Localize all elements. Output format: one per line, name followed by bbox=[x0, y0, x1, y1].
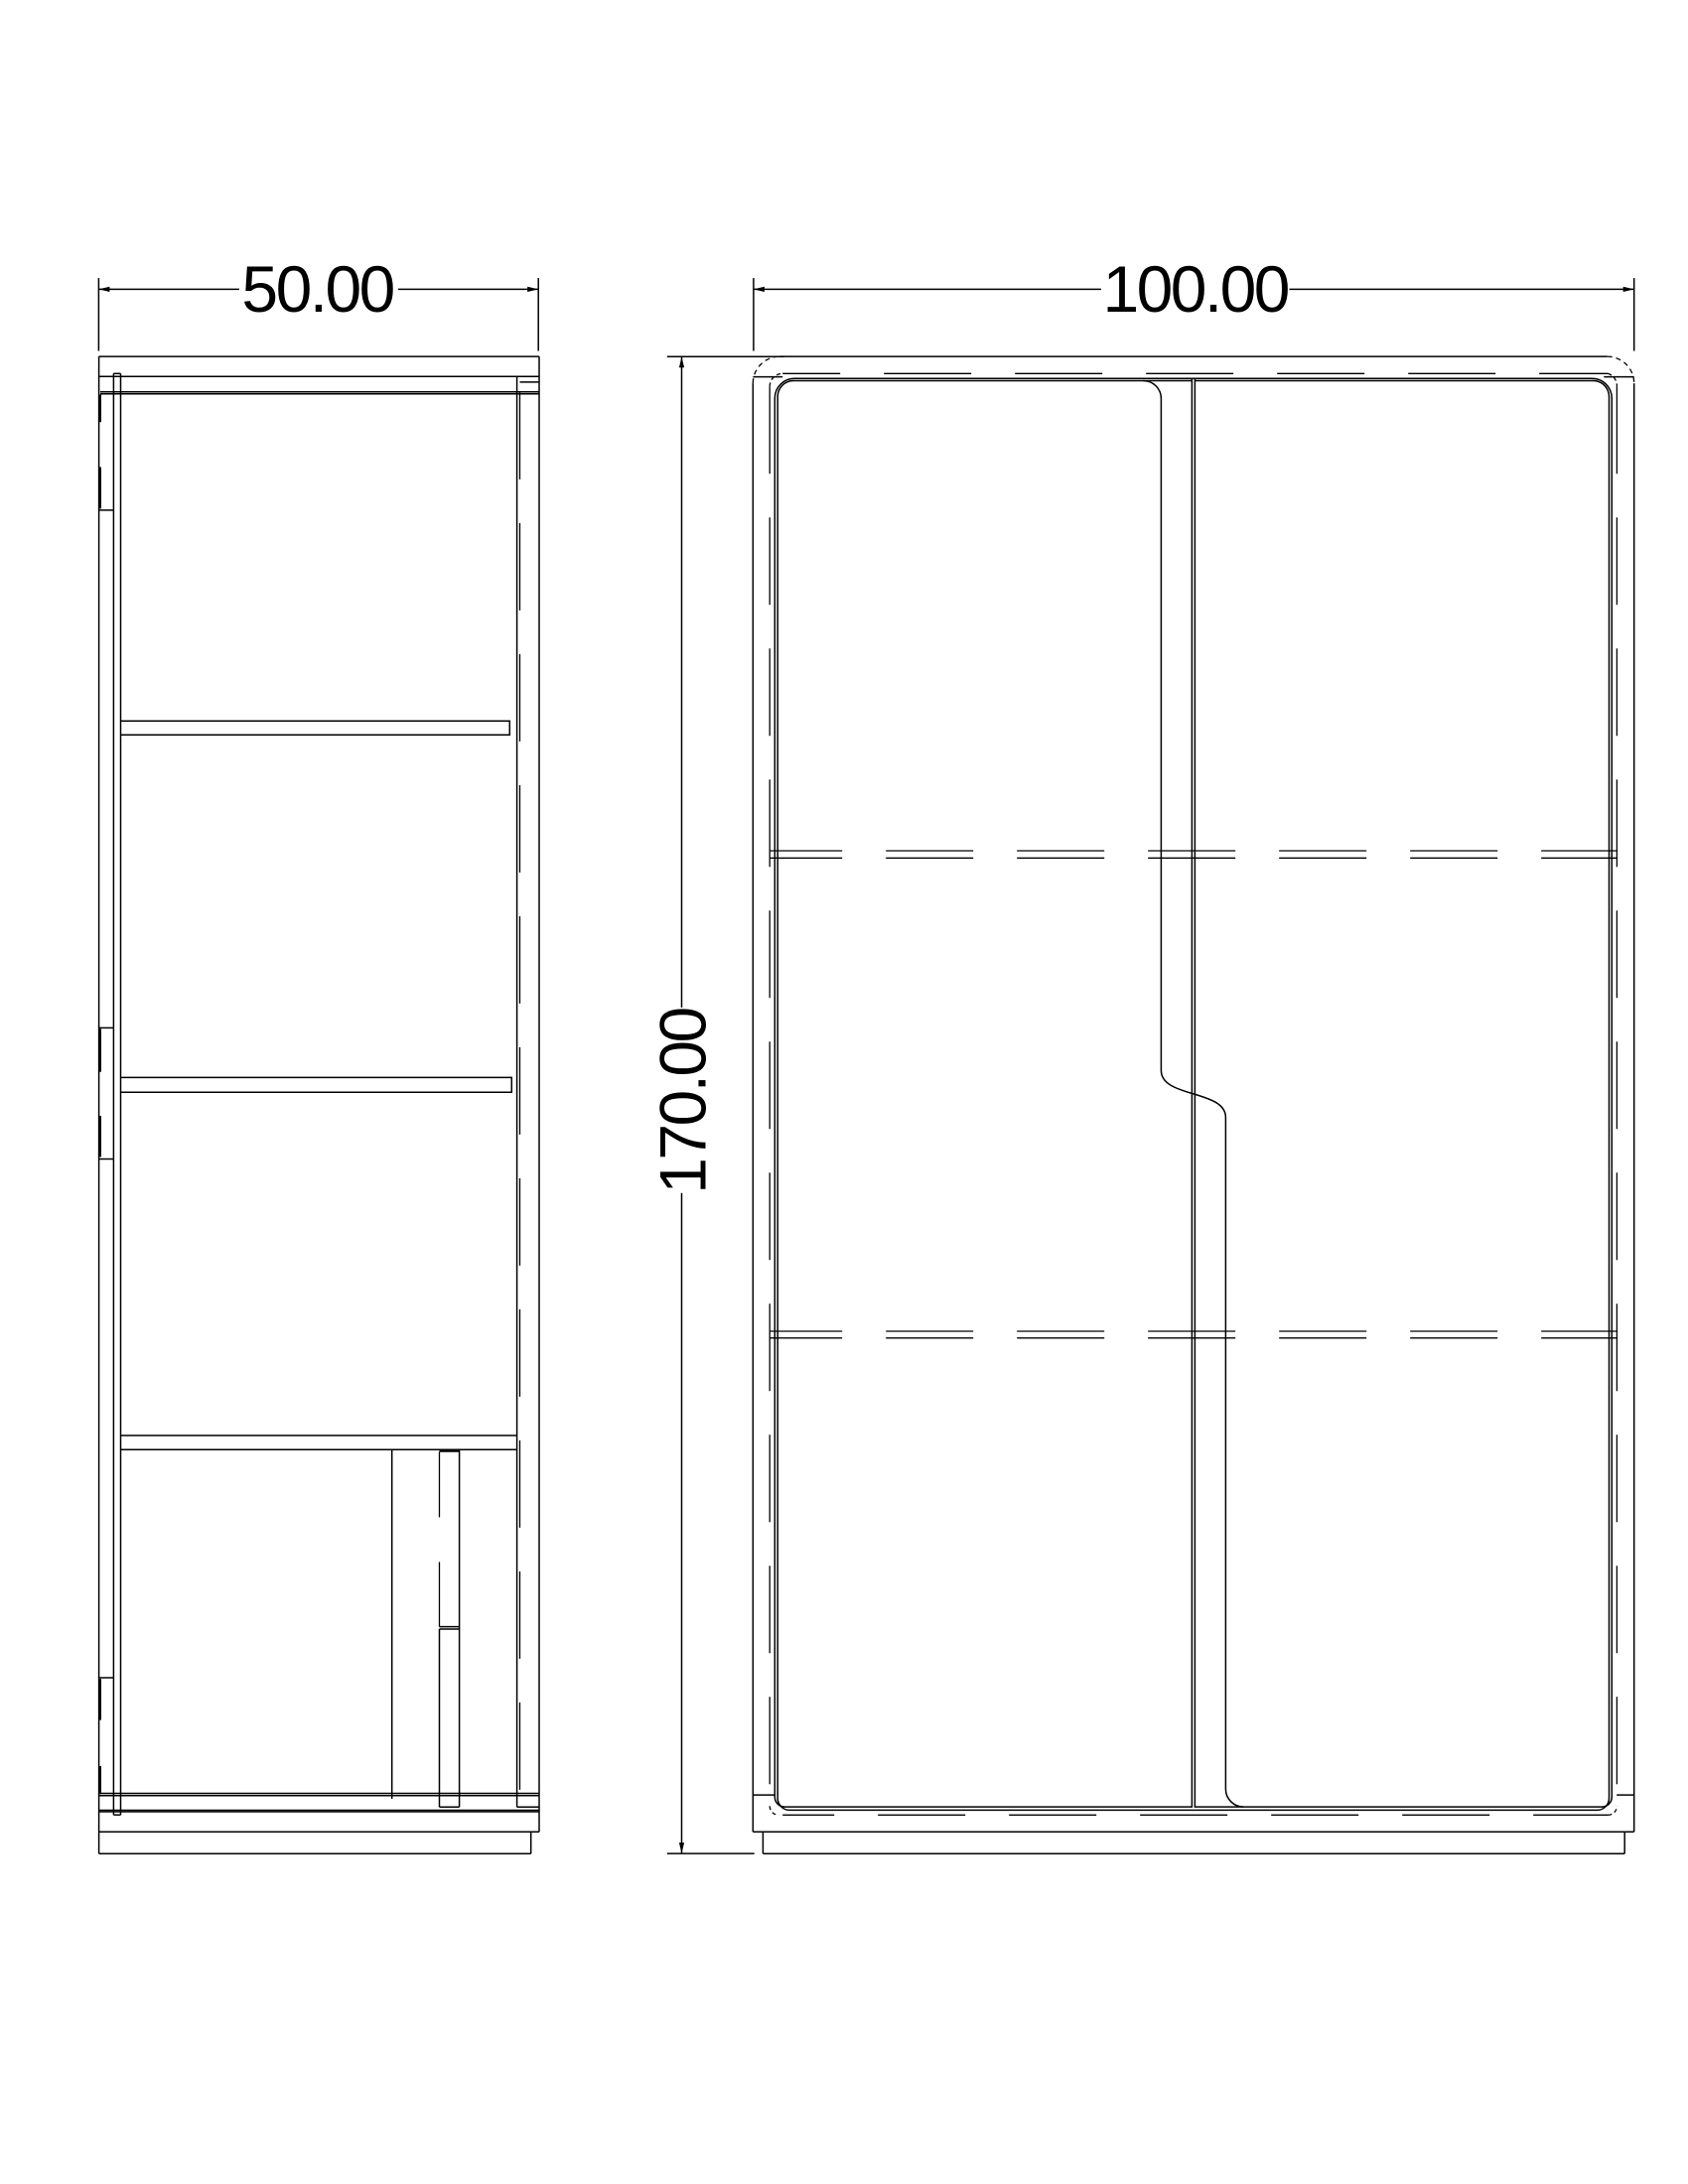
svg-text:100.00: 100.00 bbox=[1103, 252, 1291, 326]
svg-text:170.00: 170.00 bbox=[646, 1007, 720, 1194]
svg-text:50.00: 50.00 bbox=[241, 252, 395, 326]
